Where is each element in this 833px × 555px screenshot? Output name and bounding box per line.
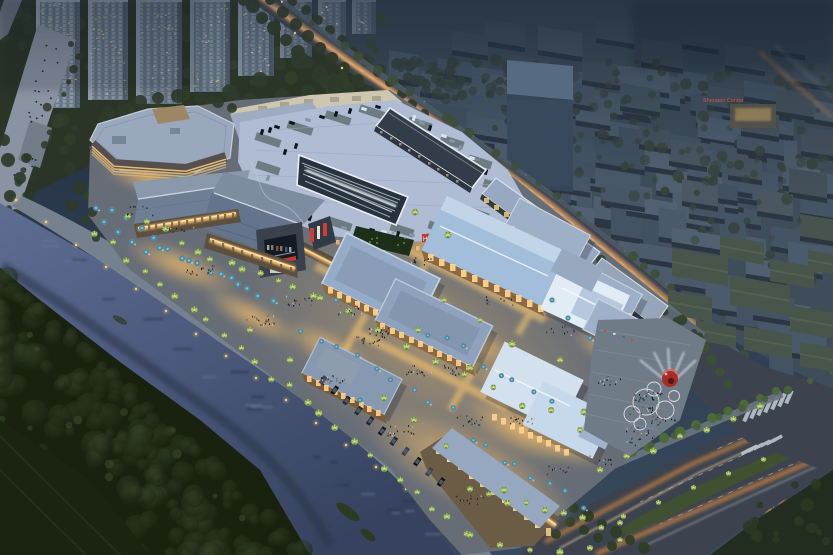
svg-text:Sheraton Centre: Sheraton Centre bbox=[703, 98, 743, 104]
